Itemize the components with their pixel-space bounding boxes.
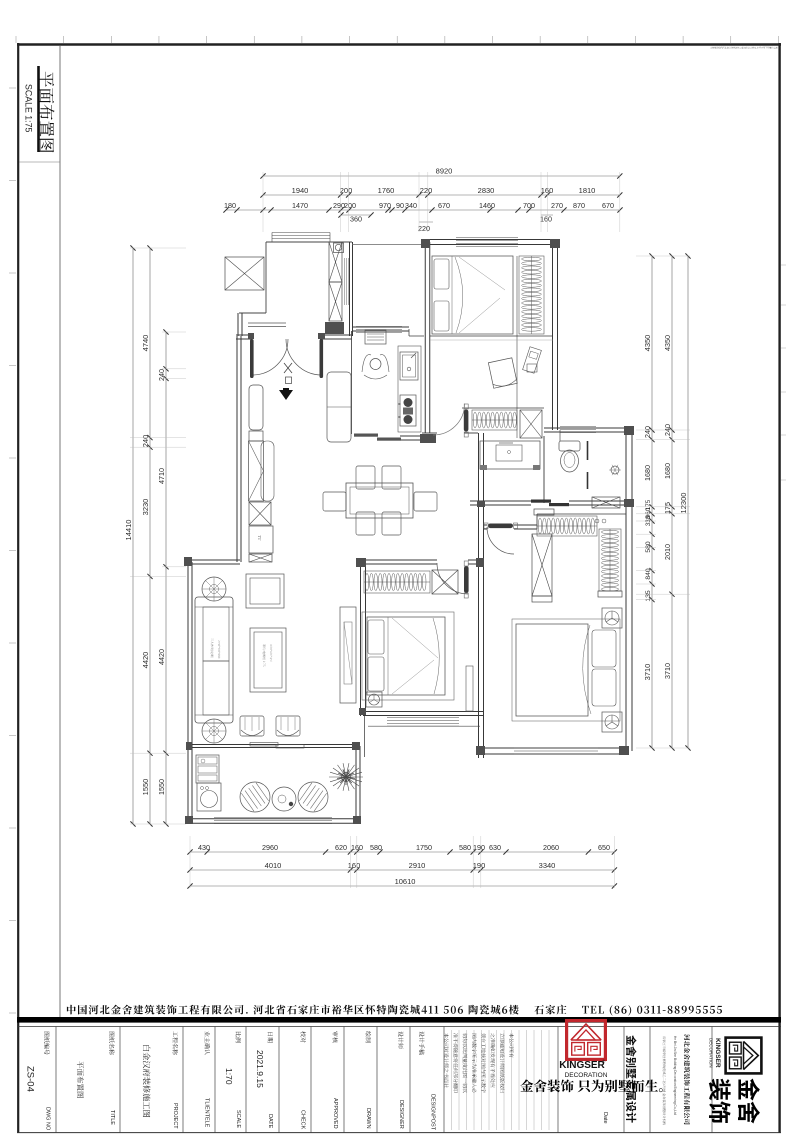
svg-text:TLIENTELE: TLIENTELE	[204, 1098, 210, 1128]
svg-text:SCALE 1:75: SCALE 1:75	[24, 84, 34, 133]
svg-text:DRAWN: DRAWN	[365, 1108, 371, 1129]
svg-text:160: 160	[351, 843, 363, 852]
svg-text:KINGSER: KINGSER	[559, 1060, 605, 1071]
svg-text:4350: 4350	[643, 335, 652, 352]
svg-text:220: 220	[420, 186, 433, 195]
svg-text:2010: 2010	[663, 544, 672, 560]
svg-text:630: 630	[489, 843, 501, 852]
svg-text:160: 160	[540, 215, 552, 224]
svg-text:4420: 4420	[157, 649, 166, 665]
svg-text:14410: 14410	[124, 520, 133, 541]
svg-text:ZS-04: ZS-04	[25, 1066, 36, 1092]
svg-text:270: 270	[551, 201, 563, 210]
svg-text:DWG NO: DWG NO	[45, 1107, 51, 1131]
svg-text:200: 200	[344, 201, 356, 210]
svg-text:KINGSER: KINGSER	[714, 1038, 721, 1068]
svg-text:SCALE: SCALE	[235, 1110, 241, 1128]
svg-text:DESIGNER: DESIGNER	[398, 1100, 404, 1129]
svg-text:1680: 1680	[663, 463, 672, 479]
svg-text:4010: 4010	[265, 861, 282, 870]
svg-text:2960: 2960	[262, 843, 278, 852]
svg-text:240: 240	[141, 435, 150, 448]
svg-text:430: 430	[198, 843, 210, 852]
svg-text:12300: 12300	[679, 493, 688, 514]
svg-text:175: 175	[663, 502, 672, 514]
svg-text:1760: 1760	[378, 186, 395, 195]
svg-text:240: 240	[643, 426, 652, 438]
svg-text:580: 580	[645, 541, 652, 553]
svg-text:DECORATION: DECORATION	[709, 1038, 714, 1068]
svg-text:He Bei Jin She Building Decora: He Bei Jin She Building Decoration Engin…	[673, 1036, 677, 1115]
svg-text:8920: 8920	[436, 166, 453, 175]
svg-text:160: 160	[348, 861, 361, 870]
svg-text:1470: 1470	[292, 201, 308, 210]
svg-text:2060: 2060	[543, 843, 559, 852]
svg-text:970: 970	[379, 201, 391, 210]
svg-text:3340: 3340	[539, 861, 556, 870]
svg-text:870: 870	[573, 201, 585, 210]
svg-text:700: 700	[523, 201, 535, 210]
svg-text:APPROVED: APPROVED	[332, 1098, 338, 1129]
svg-text:1750: 1750	[416, 843, 432, 852]
svg-text:180: 180	[224, 201, 236, 210]
svg-text:670: 670	[602, 201, 614, 210]
svg-text:4350: 4350	[663, 335, 672, 351]
svg-text:DECORATION: DECORATION	[565, 1072, 608, 1079]
svg-text:CHECK: CHECK	[300, 1110, 306, 1130]
svg-text:580: 580	[370, 843, 382, 852]
svg-text:DATE: DATE	[267, 1114, 273, 1129]
svg-text:840: 840	[645, 568, 652, 580]
svg-text:135: 135	[645, 590, 652, 602]
svg-text:1550: 1550	[141, 779, 150, 796]
svg-text:4710: 4710	[157, 468, 166, 484]
svg-text:4740: 4740	[141, 335, 150, 352]
svg-text:580: 580	[459, 843, 471, 852]
svg-text:3710: 3710	[663, 663, 672, 679]
svg-text:670: 670	[438, 201, 450, 210]
svg-text:220: 220	[418, 224, 430, 233]
svg-text:90: 90	[396, 201, 404, 210]
svg-text:2021.9.15: 2021.9.15	[255, 1050, 265, 1088]
svg-text:2830: 2830	[478, 186, 495, 195]
svg-text:Date: Date	[602, 1112, 608, 1124]
svg-text:1680: 1680	[643, 465, 652, 481]
svg-text:4420: 4420	[141, 652, 150, 669]
svg-text:TITLE: TITLE	[109, 1110, 115, 1125]
svg-text:1460: 1460	[479, 201, 495, 210]
svg-text:3230: 3230	[141, 499, 150, 516]
svg-text:2910: 2910	[409, 861, 426, 870]
svg-text:1810: 1810	[579, 186, 596, 195]
svg-text:340: 340	[405, 201, 417, 210]
svg-text:190: 190	[473, 843, 485, 852]
svg-text:650: 650	[598, 843, 610, 852]
svg-text:190: 190	[473, 861, 486, 870]
svg-text:200: 200	[340, 186, 353, 195]
svg-text:160: 160	[541, 186, 554, 195]
svg-text:1940: 1940	[292, 186, 309, 195]
svg-text:DESIGNPOST: DESIGNPOST	[430, 1094, 436, 1131]
svg-text:620: 620	[335, 843, 347, 852]
svg-text:240: 240	[157, 369, 166, 381]
svg-text:1550: 1550	[157, 779, 166, 795]
svg-text:PROJECT: PROJECT	[172, 1103, 178, 1129]
svg-text:3710: 3710	[643, 664, 652, 681]
svg-text:1:70: 1:70	[224, 1068, 234, 1085]
svg-text:10610: 10610	[395, 877, 416, 886]
svg-text:330: 330	[645, 515, 652, 526]
svg-text:360: 360	[350, 215, 362, 224]
